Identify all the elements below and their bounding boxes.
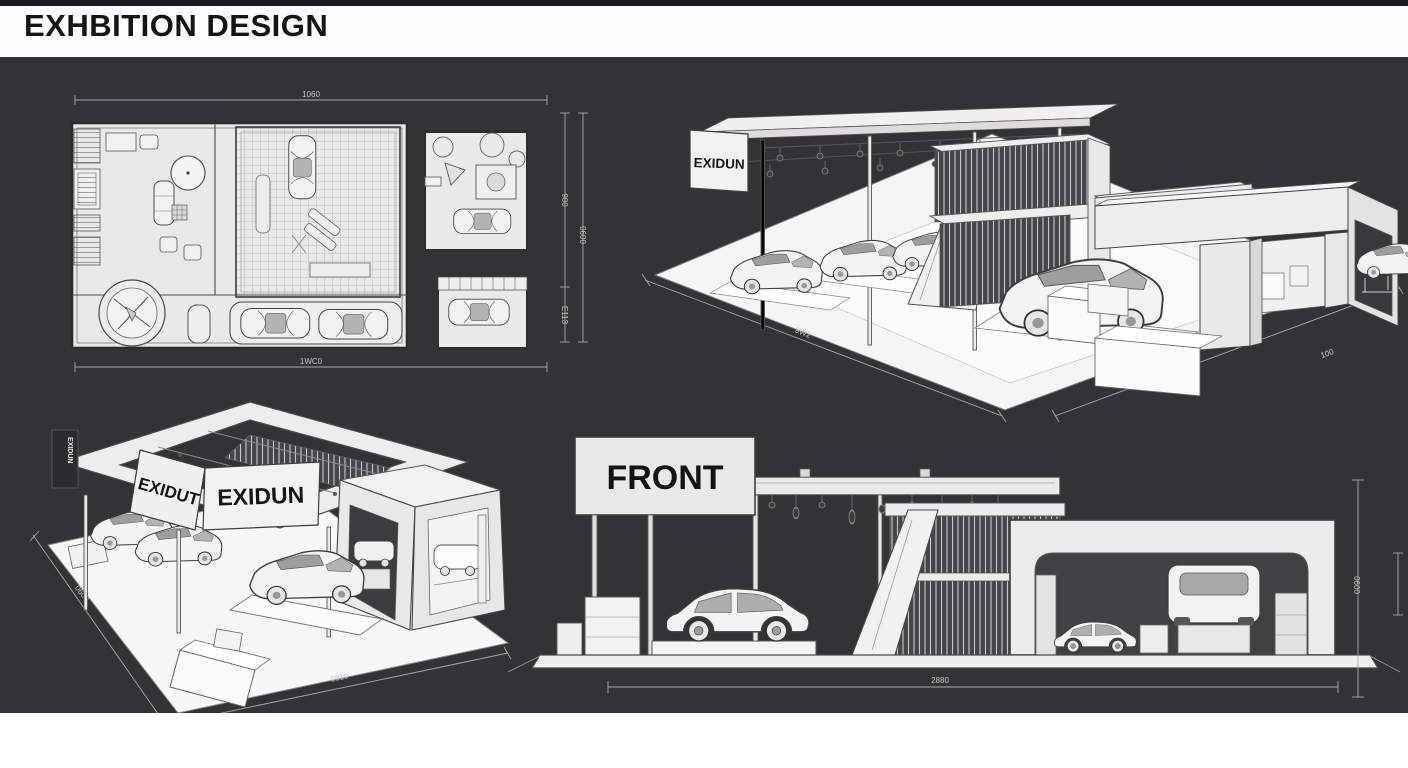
front-sign-label: FRONT <box>606 459 723 497</box>
iso2-dark-sign: EXIDUN <box>52 430 78 488</box>
plan-dim-top-label: 1060 <box>302 90 320 99</box>
front-dim-bottom-label: 2880 <box>931 676 949 685</box>
plan-dim-right-inner: 900 E113 <box>560 113 570 342</box>
iso-view-main: 9W2 100 <box>640 88 1408 418</box>
plan-car-2 <box>319 309 388 339</box>
front-left-car <box>652 589 816 655</box>
plan-dim-bottom-label: 1WC0 <box>300 357 323 366</box>
front-ground <box>508 655 1400 672</box>
iso2-dark-sign-label: EXIDUN <box>66 437 73 463</box>
plan-right-bottom-room <box>438 277 527 348</box>
page-title: EXHBITION DESIGN <box>24 8 328 44</box>
exhibition-design-board: EXHBITION DESIGN <box>0 0 1408 768</box>
plan-car-3 <box>454 209 511 233</box>
iso2-right-volume <box>335 465 505 630</box>
plan-showroom-car <box>289 136 316 199</box>
title-bar: EXHBITION DESIGN <box>0 6 1408 57</box>
plan-car-1 <box>241 308 310 338</box>
plan-car-4 <box>449 299 509 325</box>
plan-car-court <box>230 302 402 344</box>
iso2-sign-front-label: EXIDUN <box>217 481 305 510</box>
floor-plan-view: 1060 1WC0 900 E113 0600 <box>60 85 600 385</box>
plan-dim-bottom: 1WC0 <box>75 357 547 372</box>
plan-dim-top: 1060 <box>75 90 547 105</box>
plan-stage-circle <box>99 280 165 346</box>
plan-pod <box>188 305 210 343</box>
front-portal-suv <box>1168 565 1260 653</box>
front-dim-right-label: 0600 <box>1352 576 1361 594</box>
plan-shelving-band <box>74 129 100 265</box>
front-left-cabinet <box>557 597 640 655</box>
iso-view-secondary: 0600 0810 EXIDUN EXIDUT <box>30 395 510 730</box>
front-portal <box>1010 520 1335 655</box>
plan-dim-right-outer: 0600 <box>578 113 588 342</box>
plan-showroom-grid <box>236 127 400 297</box>
plan-main-hall <box>72 123 407 348</box>
iso-main-dim-right-label: 100 <box>1319 347 1335 360</box>
bottom-white-band <box>0 713 1408 768</box>
iso2-sign-front: EXIDUN <box>203 462 320 530</box>
plan-dim-right-lower-label: E113 <box>560 306 569 325</box>
iso-main-sign-label: EXIDUN <box>693 155 745 172</box>
plan-dim-right-outer-label: 0600 <box>578 226 587 244</box>
front-elevation-view: FRONT <box>500 425 1408 715</box>
iso-main-sign: EXIDUN <box>690 130 748 192</box>
plan-dim-right-upper-label: 900 <box>560 193 569 207</box>
plan-right-top-room <box>425 132 527 250</box>
front-dim-bottom: 2880 <box>608 676 1338 693</box>
